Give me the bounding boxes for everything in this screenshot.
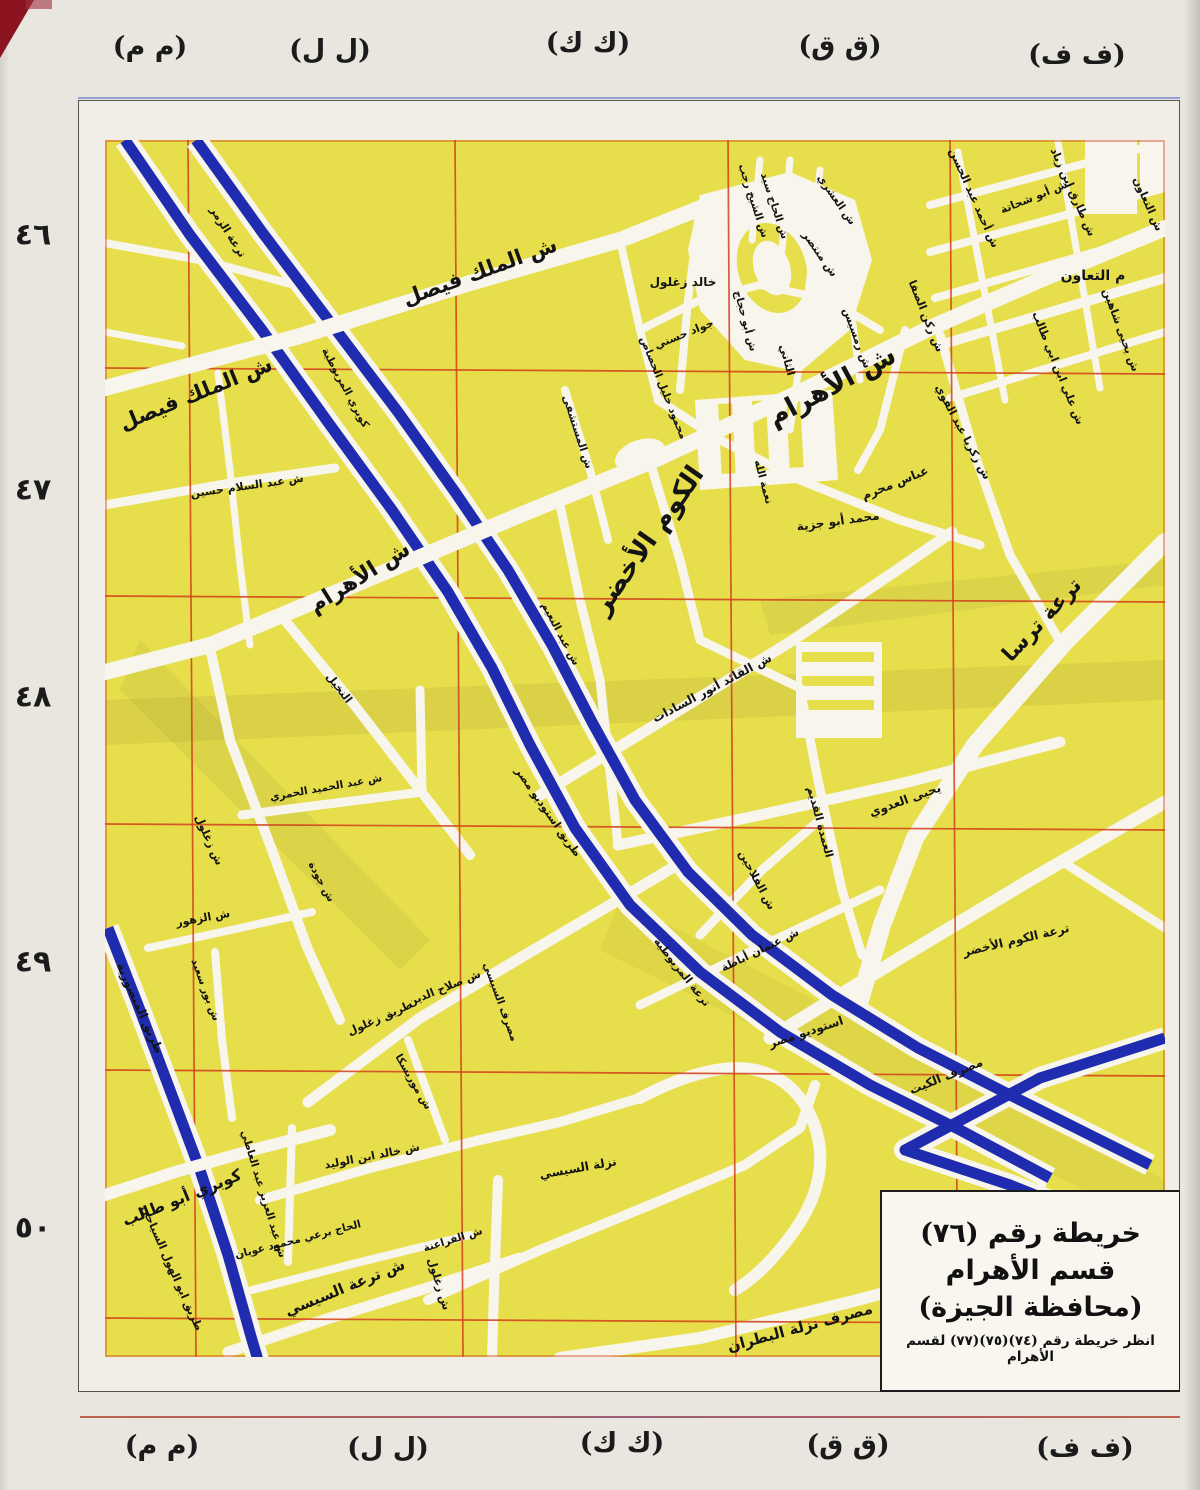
map-title-box: خريطة رقم (٧٦) قسم الأهرام (محافظة الجيز… (880, 1190, 1180, 1392)
district-title: قسم الأهرام (946, 1255, 1116, 1286)
scan-corner-artifact-2 (26, 0, 52, 9)
governorate-title: (محافظة الجيزة) (918, 1292, 1142, 1323)
see-also-note: انظر خريطة رقم (٧٤)(٧٥)(٧٧) لقسم الأهرام (882, 1333, 1179, 1365)
map-number-title: خريطة رقم (٧٦) (920, 1218, 1141, 1249)
scanned-map-page: (م م)(ل ل)(ك ك)(ق ق)(ف ف)(م م)(ل ل)(ك ك)… (0, 0, 1200, 1490)
